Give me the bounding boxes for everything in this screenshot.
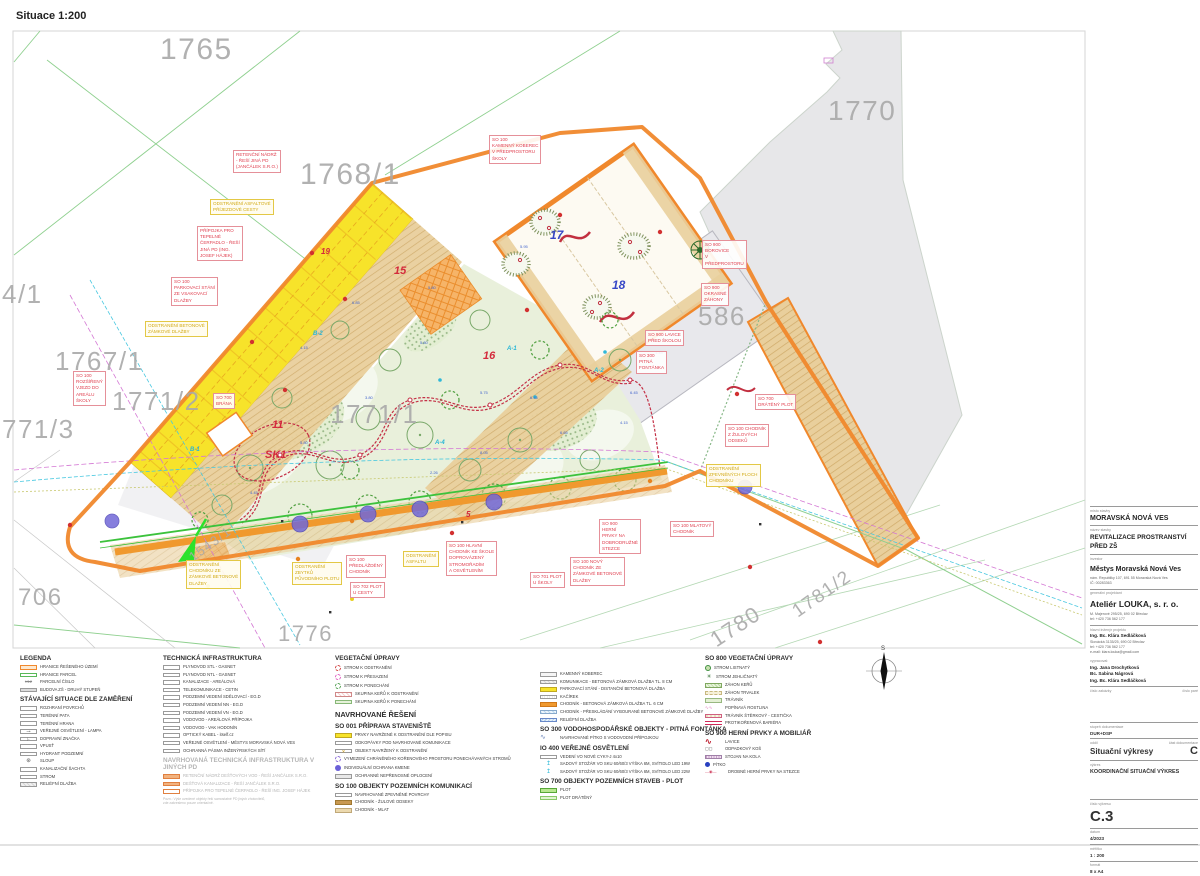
legend-header: NAVRHOVANÁ TECHNICKÁ INFRASTRUKTURA V JI… [163,757,333,771]
legend-item: STROM K ODSTRANĚNÍ [335,665,535,671]
chief-engineer-name: Ing. Bc. Klára Sedláčková [1090,633,1198,638]
legend-item: OPTICKÝ KABEL - itself.cz [163,733,333,738]
legend-item: ROZHRANÍ POVRCHŮ [20,706,155,711]
legend-item-label: KOMUNIKACE - BETONOVÁ ZÁMKOVÁ DLAŽBA TL.… [560,680,672,684]
legend-item: KANALIZACE - AREÁLOVÁ [163,680,333,685]
legend-item: LAVICE [705,740,870,745]
legend-header: SO 800 VEGETAČNÍ ÚPRAVY [705,655,870,662]
legend-item-label: VEŘEJNÉ OSVĚTLENÍ - MĚSTYS MORAVSKÁ NOVÁ… [183,741,295,745]
legend-item-label: OCHRANNÁ PÁSMA INŽENÝRSKÝCH SÍTÍ [183,749,265,753]
legend-list: PLOT PLOT DRÁTĚNÝ [540,788,735,800]
compass-north-letter: S [881,646,885,652]
plan-annotation: 4.15 [300,345,308,350]
legend-list: NAVRHOVANÉ ZPEVNĚNÉ POVRCHY CHODNÍK - ŽU… [335,793,535,813]
legend-item-label: PŘÍPOJKA PRO TEPELNÉ ČERPADLO - ŘEŠÍ ING… [183,789,310,793]
plan-annotation: ODSTRANĚNÍ ZBYTKŮ PŮVODNÍHO PLOTU [292,562,342,585]
legend-swatch-icon [540,755,557,760]
plan-annotation: 1770 [828,93,896,129]
legend-item: PODZEMNÍ VEDENÍ SDĚLOVACÍ - EG.D [163,695,333,700]
plan-annotation: 15 [394,264,406,278]
legend-item-label: KANALIZACE - AREÁLOVÁ [183,680,235,684]
legend-item-label: PODZEMNÍ VEDENÍ VN - EG.D [183,711,243,715]
legend-item: TERÉNNÍ HRANA [20,721,155,726]
legend-item: STROM JEHLIČNATÝ [705,674,870,680]
legend-swatch-icon [20,665,37,670]
legend-swatch-icon [705,721,722,725]
plan-annotation: ODSTRANĚNÍ ASFALTU [403,551,439,567]
legend-item-label: CHODNÍK - MLAT [355,808,389,812]
plan-annotation: 1771/2 [112,385,201,419]
legend-swatch-icon [705,698,722,703]
designer-name: Ateliér LOUKA, s. r. o. [1090,599,1198,609]
legend-swatch-icon [335,793,352,798]
titleblock-label: oddíl [1090,740,1098,746]
legend-item-label: VEDENÍ VO NOVÉ CYKY-J 4x10 [560,755,622,759]
plan-annotation: 706 [18,582,63,613]
legend-item: PLYNOVOD NTL - GASNET [163,673,333,678]
legend-item: STROM [20,775,155,780]
legend-swatch-icon [540,687,557,692]
plan-annotation: SO 100 KAMENNÝ KOBEREC V PŘEDPROSTORU ŠK… [489,135,541,164]
legend-item-label: STOJAN NA KOLA [725,755,761,759]
plan-annotation: 1765 [160,30,233,69]
legend-swatch-icon [20,714,37,719]
plan-annotation: SO 100 ROZŠÍŘENÝ VJEZD DO AREÁLU ŠKOLY [73,371,106,406]
legend-item: VYMEZENÍ CHRÁNĚNÉHO KOŘENOVÉHO PROSTORU … [335,756,535,762]
legend-item-label: ZÁHON TRVALEK [725,691,759,695]
legend-item: STROM LISTNATÝ [705,665,870,671]
legend-item: HYDRANT PODZEMNÍ [20,752,155,757]
legend-swatch-icon [20,729,37,734]
legend-swatch-icon [163,718,180,723]
legend-swatch-icon [705,770,725,775]
legend-swatch-icon [335,756,341,762]
legend-swatch-icon [335,733,352,738]
author-name: Ing. Jana Drochytková [1090,665,1198,670]
legend-item-label: OPTICKÝ KABEL - itself.cz [183,733,234,737]
plan-annotation: B-2 [313,331,323,339]
legend-item: VODOVOD - VAK HODONÍN [163,726,333,731]
drawing-date: 4/2023 [1090,836,1198,841]
titleblock-label: datum [1090,828,1198,835]
legend-item: TELEKOMUNIKACE - CETIN [163,688,333,693]
legend-swatch-icon [20,744,37,749]
legend-item: NAVRHOVANÉ ZPEVNĚNÉ POVRCHY [335,793,535,798]
plan-annotation: 771/3 [2,413,75,447]
legend-swatch-icon [705,762,710,767]
legend-item-label: INDIVIDUÁLNÍ OCHRANA KMENE [344,766,410,770]
plan-annotation: 6.65 [560,430,568,435]
legend-item-label: ZÁHON KEŘŮ [725,683,752,687]
plan-annotation: B-1 [190,447,200,455]
legend-swatch-icon [705,714,722,719]
legend-list: PLYNOVOD STL - GASNET PLYNOVOD NTL - GAS… [163,665,333,753]
legend-swatch-icon [20,767,37,772]
legend-swatch-icon [163,789,180,794]
legend-swatch-icon [163,749,180,754]
legend-item: TRÁVNÍK ŠTĚRKOVÝ - CESTIČKA [705,714,870,719]
legend-item-label: STROM K PŘESAZENÍ [344,675,388,679]
legend-swatch-icon [20,759,37,764]
plan-annotation: PŘÍPOJKA PRO TEPELNÉ ČERPADLO - ŘEŠÍ JIN… [197,226,243,261]
legend-item: CHODNÍK - MLAT [335,808,535,813]
legend-item: HRANICE ŘEŠENÉHO ÚZEMÍ [20,665,155,670]
legend-item-label: VPUSŤ [40,744,54,748]
legend-item-label: ODKOPÁVKY POD NAVRHOVANÉ KOMUNIKACE [355,741,451,745]
legend-item-label: NAVRHOVANÉ ZPEVNĚNÉ POVRCHY [355,793,429,797]
designer-address: M. Majerové 295/25, 690 02 Břeclav tel: … [1090,612,1198,622]
plan-annotation: A-4 [435,440,445,448]
plan-annotation: ODSTRANĚNÍ ASFALTOVÉ PŘÍJEZDOVÉ CESTY [210,199,274,215]
plan-annotation: SO 900 LAVICE PŘED ŠKOLOU [645,330,684,346]
legend-item-label: HYDRANT PODZEMNÍ [40,752,83,756]
legend-item: PŘÍPOJKA PRO TEPELNÉ ČERPADLO - ŘEŠÍ ING… [163,789,333,794]
legend-item-label: RELIÉFNÍ DLAŽBA [40,782,76,786]
legend-item-label: RETENČNÍ NÁDRŽ DEŠŤOVÝCH VOD - ŘEŠÍ JANČ… [183,774,307,778]
legend-swatch-icon [540,702,557,707]
plan-annotation: RETENČNÍ NÁDRŽ - ŘEŠÍ JINÁ PD (JANČÁLEK … [233,150,281,173]
legend-item-label: PLOT [560,788,571,792]
legend-swatch-icon [540,680,557,685]
legend-swatch-icon [163,680,180,685]
legend-item-label: ROZHRANÍ POVRCHŮ [40,706,84,710]
legend-item: VEŘEJNÉ OSVĚTLENÍ - LAMPA [20,729,155,734]
plan-annotation: 4.45 [250,490,258,495]
legend-item-label: DOPRAVNÍ ZNAČKA [40,737,80,741]
legend-item: PARCELNÍ ČÍSLO [20,680,155,685]
legend-item-label: CHODNÍK - PŘESKLÁDÁNÍ VYBOURANÉ BETONOVÉ… [560,710,703,714]
legend-item: ZÁHON TRVALEK [705,691,870,696]
plan-annotation: 3.80 [365,395,373,400]
titleblock-label: měřítko [1090,844,1198,851]
legend-item: BUDOVA ZŠ - DRUHÝ STUPEŇ [20,688,155,693]
legend-swatch-icon [20,775,37,780]
plan-annotation: SO 300 PITNÁ FONTÁNKA [636,351,667,374]
legend-item: OCHRANNÁ PÁSMA INŽENÝRSKÝCH SÍTÍ [163,749,333,754]
legend-item: STROM K PONECHÁNÍ [335,683,535,689]
legend-item: ZÁHON KEŘŮ [705,683,870,688]
plan-annotation: 18 [612,278,625,294]
legend-header: SO 100 OBJEKTY POZEMNÍCH KOMUNIKACÍ [335,783,535,790]
legend-item-label: NAVRHOVANÉ PÍTKO S VODOVODNÍ PŘÍPOJKOU [560,736,659,740]
legend-item-label: TRÁVNÍK ŠTĚRKOVÝ - CESTIČKA [725,714,792,718]
legend-list: ROZHRANÍ POVRCHŮ TERÉNNÍ PATA TERÉNNÍ HR… [20,706,155,786]
plan-annotation: SO 900 HERNÍ PRVKY NA DOBRODRUŽNÉ STEZCE [599,519,641,554]
plan-annotation: 5 [466,510,470,520]
chief-engineer-address: Slovácká 3135/25, 690 02 Břeclav tel: +4… [1090,640,1198,655]
legend-item: VPUSŤ [20,744,155,749]
plan-annotation: 5.80 [420,340,428,345]
plan-annotation: SO 100 PARKOVACÍ STÁNÍ ZE VSAKOVACÍ DLAŽ… [171,277,218,306]
legend-item-label: DEŠŤOVÁ KANALIZACE - ŘEŠÍ JANČÁLEK S.R.O… [183,782,280,786]
legend-list: PRVKY NAVRŽENÉ K ODSTRANĚNÍ DLE POPISU O… [335,733,535,778]
author-name: Bc. Sabina Nágrová [1090,671,1198,676]
legend-swatch-icon [540,695,557,700]
legend-item-label: PARKOVACÍ STÁNÍ - DISTANČNÍ BETONOVÁ DLA… [560,687,665,691]
plan-annotation: 5.80 [300,440,308,445]
plan-annotation: A-1 [507,346,517,354]
titleblock-label: místo stavby [1090,506,1198,513]
legend-item: SKUPINA KEŘŮ K ODSTRANĚNÍ [335,692,535,697]
legend-item: VODOVOD - AREÁLOVÁ PŘÍPOJKA [163,718,333,723]
legend-item-label: TERÉNNÍ HRANA [40,722,74,726]
legend-item-label: PRVKY NAVRŽENÉ K ODSTRANĚNÍ DLE POPISU [355,733,452,737]
legend-item-label: HRANICE PARCEL [40,673,76,677]
legend-item-label: OBJEKT NAVRŽENÝ K ODSTRANĚNÍ [355,749,427,753]
legend-item-label: CHODNÍK - BETONOVÁ ZÁMKOVÁ DLAŽBA TL. 6 … [560,702,663,706]
legend-header: VEGETAČNÍ ÚPRAVY [335,655,535,662]
legend-item-label: VEŘEJNÉ OSVĚTLENÍ - LAMPA [40,729,102,733]
legend-swatch-icon [20,721,37,726]
legend-swatch-icon [335,800,352,805]
legend-swatch-icon [705,755,722,760]
legend-swatch-icon [20,673,37,678]
legend-item-label: STROM [40,775,55,779]
legend-swatch-icon [705,683,722,688]
legend-swatch-icon [540,710,557,715]
legend-swatch-icon [163,673,180,678]
legend-item-label: TELEKOMUNIKACE - CETIN [183,688,238,692]
titleblock-label: formát [1090,861,1198,868]
legend-item: STROM K PŘESAZENÍ [335,674,535,680]
legend-item: ODPADKOVÝ KOŠ [705,747,870,752]
titleblock-label: investor [1090,554,1198,561]
plan-annotation: SO 100 MLATOVÝ CHODNÍK [670,521,714,537]
titleblock-label: název stavby [1090,525,1198,532]
authors-list: Ing. Jana DrochytkováBc. Sabina NágrováI… [1090,665,1198,683]
legend-item-label: VODOVOD - AREÁLOVÁ PŘÍPOJKA [183,718,252,722]
legend-swatch-icon [163,726,180,731]
legend-item: SLOUP [20,759,155,764]
titleblock-label: číslo výkresu [1090,799,1198,806]
scale-label: Situace 1:200 [16,10,86,22]
section-title: Situační výkresy [1090,747,1153,756]
plan-annotation: SO 900 BOROVICE V PŘEDPROSTORU [702,240,747,269]
legend-header: SO 700 OBJEKTY POZEMNÍCH STAVEB - PLOT [540,778,735,785]
drawing-sheet: { "sheet": { "scale_label": "Situace 1:2… [0,0,1200,847]
legend-swatch-icon [335,692,352,697]
legend-item: RELIÉFNÍ DLAŽBA [20,782,155,787]
plan-annotation: ODSTRANĚNÍ CHODNÍKU ZE ZÁMKOVÉ BETONOVÉ … [186,560,241,589]
legend-item-label: RELIÉFNÍ DLAŽBA [560,718,596,722]
legend-header: SO 900 HERNÍ PRVKY A MOBILIÁŘ [705,730,870,737]
legend-swatch-icon [540,796,557,801]
titleblock-label: číslo paré [1182,688,1198,694]
legend-item: PLOT [540,788,735,793]
section-letter: C [1190,745,1198,757]
plan-annotation: 1768/1 [300,155,401,194]
legend-item-label: PLYNOVOD STL - GASNET [183,665,236,669]
legend-swatch-icon [20,706,37,711]
plan-annotation: SO 700 BRÁNA [213,393,235,409]
legend-header: NAVRHOVANÉ ŘEŠENÍ [335,710,535,719]
plan-annotation: SO 702 PLOT U CESTY [350,582,385,598]
legend-item-label: PODZEMNÍ VEDENÍ SDĚLOVACÍ - EG.D [183,695,261,699]
plan-annotation: 11 [272,418,283,432]
legend-item-label: OCHRANNÉ NEPŘENOSNÉ OPLOCENÍ [355,774,432,778]
titleblock-label: vypracoval: [1090,658,1198,664]
legend-swatch-icon [540,770,557,775]
legend-swatch-icon [540,718,557,723]
proposed-infrastructure-section: NAVRHOVANÁ TECHNICKÁ INFRASTRUKTURA V JI… [163,757,333,806]
plan-annotation: SK1 [265,448,286,462]
project-name: REVITALIZACE PROSTRANSTVÍ PŘED ZŠ [1090,534,1198,551]
drawing-title: KOORDINAČNÍ SITUAČNÍ VÝKRES [1090,769,1198,775]
drawing-format: 8 x A4 [1090,869,1198,874]
legend-item-label: STROM K PONECHÁNÍ [344,684,389,688]
legend-list: RETENČNÍ NÁDRŽ DEŠŤOVÝCH VOD - ŘEŠÍ JANČ… [163,774,333,794]
plan-annotation: SO 100 HLAVNÍ CHODNÍK KE ŠKOLE DOPROVÁZE… [446,541,497,576]
legend-item-label: VYMEZENÍ CHRÁNĚNÉHO KOŘENOVÉHO PROSTORU … [344,757,511,761]
plan-annotation: 6.45 [530,395,538,400]
legend-swatch-icon [163,774,180,779]
legend-item-label: KANALIZAČNÍ ŠACHTA [40,767,85,771]
legend-item-label: BUDOVA ZŠ - DRUHÝ STUPEŇ [40,688,100,692]
legend-item: PODZEMNÍ VEDENÍ NN - EG.D [163,703,333,708]
legend-item: STOJAN NA KOLA [705,755,870,760]
plan-annotation: 6.85 [352,300,360,305]
legend-list: STROM LISTNATÝ STROM JEHLIČNATÝ ZÁHON KE… [705,665,870,726]
legend-swatch-icon [705,706,722,711]
legend-item-label: HRANICE ŘEŠENÉHO ÚZEMÍ [40,665,98,669]
plan-annotation: 2.26 [430,470,438,475]
legend-item-label: CHODNÍK - ŽULOVÉ ODSEKY [355,800,413,804]
legend-item: TERÉNNÍ PATA [20,714,155,719]
legend-swatch-icon [335,749,352,754]
author-name: Ing. Bc. Klára Sedláčková [1090,678,1198,683]
legend-item: DOPRAVNÍ ZNAČKA [20,737,155,742]
legend-header: TECHNICKÁ INFRASTRUKTURA [163,655,333,662]
legend-swatch-icon [540,788,557,793]
legend-item-label: VODOVOD - VAK HODONÍN [183,726,237,730]
plan-annotation: A-2 [594,368,604,376]
legend-item: PLOT DRÁTĚNÝ [540,796,735,801]
legend-swatch-icon [540,762,557,767]
documentation-stage: DUR+DSP [1090,731,1198,736]
legend-note: Pozn.: Výše uvedené objekty řeší samosta… [163,797,333,806]
legend-item-label: SLOUP [40,759,54,763]
plan-annotation: SO 701 PLOT U ŠKOLY [530,572,565,588]
legend-item-label: PROTIKOŘENOVÁ BARIÉRA [725,721,781,725]
legend-item: PLYNOVOD STL - GASNET [163,665,333,670]
legend-item: TRÁVNÍK [705,698,870,703]
titleblock-label: stupeň dokumentace [1090,722,1198,729]
legend-swatch-icon [163,665,180,670]
legend-swatch-icon [163,703,180,708]
legend-item: CHODNÍK - ŽULOVÉ ODSEKY [335,800,535,805]
legend-item: RETENČNÍ NÁDRŽ DEŠŤOVÝCH VOD - ŘEŠÍ JANČ… [163,774,333,779]
investor-address: nám. Republiky 107, 691 55 Moravská Nová… [1090,576,1198,586]
legend-item: HRANICE PARCEL [20,673,155,678]
legend-item: INDIVIDUÁLNÍ OCHRANA KMENE [335,765,535,771]
plan-annotation: 8.05 [480,450,488,455]
legend-swatch-icon [335,765,341,771]
legend-item: OCHRANNÉ NEPŘENOSNÉ OPLOCENÍ [335,774,535,779]
legend-item-label: SADOVÝ STOŽÁR VO SKU 60/60/3 VÝŠKA 6M, S… [560,762,690,766]
legend-item: VEŘEJNÉ OSVĚTLENÍ - MĚSTYS MORAVSKÁ NOVÁ… [163,741,333,746]
legend-item: PROTIKOŘENOVÁ BARIÉRA [705,721,870,725]
titleblock-label: hlavní inženýr projektu [1090,625,1198,632]
legend-item-label: STROM JEHLIČNATÝ [716,675,758,679]
legend-swatch-icon [335,683,341,689]
legend-list: LAVICE ODPADKOVÝ KOŠ STOJAN NA KOLA PÍTK… [705,740,870,775]
legend-swatch-icon [163,733,180,738]
legend-item-label: KAMENNÝ KOBEREC [560,672,602,676]
plan-annotation: 19 [321,247,330,257]
legend-swatch-icon [163,782,180,787]
plan-annotation: 4/1 [2,278,43,312]
legend-item-label: ODPADKOVÝ KOŠ [725,747,761,751]
legend-item: PODZEMNÍ VEDENÍ VN - EG.D [163,711,333,716]
legend-swatch-icon [705,747,722,752]
legend-swatch-icon [20,752,37,757]
plan-annotation: SO 700 DRÁTĚNÝ PLOT [755,394,796,410]
investor-name: Městys Moravská Nová Ves [1090,566,1198,573]
plan-annotation: 5.75 [480,390,488,395]
legend-header: SO 001 PŘÍPRAVA STAVENIŠTĚ [335,723,535,730]
legend-swatch-icon [20,782,37,787]
drawing-scale: 1 : 200 [1090,853,1198,858]
plan-annotation: 6.45 [630,390,638,395]
legend-item-label: TRÁVNÍK [725,698,743,702]
legend-item: PÍTKO [705,762,870,767]
legend-item-label: STROM K ODSTRANĚNÍ [344,666,392,670]
legend-column-1: LEGENDA HRANICE ŘEŠENÉHO ÚZEMÍ HRANICE P… [20,655,155,790]
legend-swatch-icon [540,736,557,741]
legend-item-label: KAČÍREK [560,695,578,699]
legend-item-label: PARCELNÍ ČÍSLO [40,680,74,684]
plan-annotation: 1771/1 [330,398,419,432]
legend-column-3: VEGETAČNÍ ÚPRAVY STROM K ODSTRANĚNÍ STRO… [335,655,535,816]
plan-annotation: SO 100 NOVÝ CHODNÍK ZE ZÁMKOVÉ BETONOVÉ … [570,557,625,586]
legend-swatch-icon [163,695,180,700]
legend-item: KANALIZAČNÍ ŠACHTA [20,767,155,772]
legend-item-label: TERÉNNÍ PATA [40,714,70,718]
north-arrow-icon [866,652,902,690]
legend-list: HRANICE ŘEŠENÉHO ÚZEMÍ HRANICE PARCEL PA… [20,665,155,692]
legend-column-2: TECHNICKÁ INFRASTRUKTURA PLYNOVOD STL - … [163,655,333,806]
legend-swatch-icon [163,688,180,693]
titleblock-label: generální projektant [1090,589,1198,596]
legend-swatch-icon [163,711,180,716]
legend-item-label: LAVICE [725,740,740,744]
plan-annotation: SO 900 OKRASNÉ ZÁHONY [701,283,729,306]
legend-item-label: SKUPINA KEŘŮ K ODSTRANĚNÍ [355,692,419,696]
legend-item-label: PLOT DRÁTĚNÝ [560,796,592,800]
legend-swatch-icon [335,808,352,813]
legend-swatch-icon [163,741,180,746]
legend-item: SKUPINA KEŘŮ K PONECHÁNÍ [335,700,535,705]
legend-swatch-icon [20,688,37,693]
legend-item: PRVKY NAVRŽENÉ K ODSTRANĚNÍ DLE POPISU [335,733,535,738]
legend-swatch-icon [705,665,711,671]
legend-header: LEGENDA [20,655,155,662]
legend-item-label: PÍTKO [713,763,726,767]
plan-annotation: 5.80 [428,285,436,290]
titleblock-label: číslo zakázky [1090,688,1111,694]
legend-item: DROBNÉ HERNÍ PRVKY NA STEZCE [705,770,870,775]
titleblock-label: výkres [1090,760,1198,767]
plan-annotation: ODSTRANĚNÍ BETONOVÉ ZÁMKOVÉ DLAŽBY [145,321,208,337]
legend-swatch-icon [335,700,352,705]
legend-item-label: PODZEMNÍ VEDENÍ NN - EG.D [183,703,243,707]
plan-annotation: 17 [550,228,563,244]
legend-swatch-icon [20,737,37,742]
plan-annotation: SO 100 CHODNÍK Z ŽULOVÝCH ODSEKŮ [725,424,769,447]
legend-swatch-icon [335,774,352,779]
legend-swatch-icon [705,691,722,696]
legend-item-label: PLYNOVOD NTL - GASNET [183,673,236,677]
